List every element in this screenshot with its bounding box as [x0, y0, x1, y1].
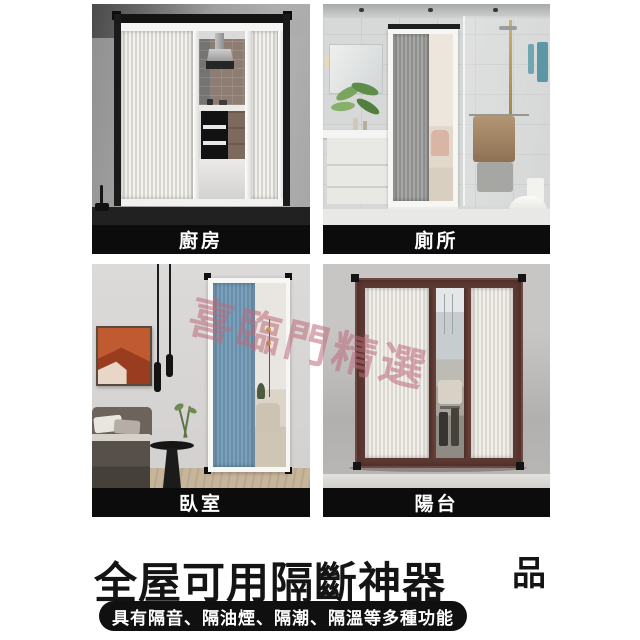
door-frame-post-right [283, 14, 290, 206]
chair-silhouette [451, 408, 459, 446]
door-bottom-rail [121, 199, 283, 206]
door-rail [278, 31, 283, 199]
pendant-light [154, 362, 161, 392]
table-plant [170, 404, 200, 444]
frame-cap [516, 462, 524, 470]
quadrant-kitchen: 廚房 [92, 4, 310, 254]
range-hood [207, 49, 233, 61]
corner-character: 品 [512, 546, 546, 595]
sofa [256, 403, 280, 431]
pendant-cord [169, 264, 171, 354]
door-frame-top [114, 14, 290, 23]
pendant-light [166, 354, 173, 377]
window-mullion [444, 294, 445, 334]
plant-silhouette [257, 383, 265, 399]
pendant-cord [157, 264, 159, 362]
kitchen-doorway-view [199, 31, 245, 199]
potted-plant [329, 82, 389, 134]
toilet-label: 廁所 [323, 225, 550, 254]
bathroom-floor [323, 209, 550, 225]
ceiling-light [428, 8, 433, 12]
wood-rail [429, 288, 436, 458]
feature-pill-text: 具有隔音、隔油煙、隔潮、隔溫等多種功能 [112, 604, 454, 629]
bed-reflection [438, 380, 462, 404]
door-frame-post-left [114, 14, 121, 206]
accordion-panel-right [471, 288, 513, 458]
oven-handle [203, 141, 226, 145]
frame-cap [518, 274, 526, 282]
ceiling-light [493, 8, 498, 12]
chair-silhouette [439, 412, 448, 446]
towel-teal [537, 42, 548, 82]
quadrant-balcony: 陽台 [323, 264, 550, 517]
plant-leaf [355, 96, 382, 117]
window-mullion [452, 294, 453, 334]
toiletry-bottle [363, 121, 367, 130]
bed-blanket [92, 434, 150, 488]
toiletry-bottle [353, 118, 358, 130]
center-glass-view [436, 288, 464, 458]
doorway-view [429, 34, 453, 201]
towel-teal [528, 44, 534, 74]
feature-pill: 具有隔音、隔油煙、隔潮、隔溫等多種功能 [99, 601, 467, 631]
towel-gray [477, 162, 513, 192]
wall-art [96, 326, 152, 386]
range-hood-chimney [215, 33, 224, 49]
built-in-oven [201, 111, 228, 159]
wood-rail [464, 288, 471, 458]
balcony-label: 陽台 [323, 488, 550, 517]
door-header-rail [121, 23, 283, 31]
kitchen-label: 廚房 [92, 225, 310, 254]
balcony-floor [323, 474, 550, 488]
bedroom-label: 臥室 [92, 488, 310, 517]
pillow [114, 419, 141, 435]
kitchen-cabinet [228, 111, 245, 159]
faucet-base [95, 203, 109, 211]
quadrant-toilet: 廁所 [323, 4, 550, 254]
range-hood-panel [206, 61, 234, 69]
accordion-panel-gray [393, 34, 429, 201]
accordion-panel-right [251, 31, 278, 199]
faucet-silhouette [95, 185, 109, 211]
accordion-panel-left [121, 31, 193, 199]
frame-cap [353, 462, 361, 470]
plant-leaf [350, 80, 380, 98]
product-banner: 廚房 [0, 0, 640, 640]
armchair [431, 130, 449, 156]
shower-head [499, 26, 517, 30]
ceiling-light [359, 8, 364, 12]
kitchen-floor [199, 159, 245, 199]
towel-brown [473, 116, 515, 162]
frame-cap [351, 274, 359, 282]
kitchen-photo [92, 4, 310, 225]
faucet-stem [100, 185, 103, 205]
kitchen-counter-base [92, 207, 310, 225]
plant-leaf [331, 101, 356, 112]
oven-handle [203, 125, 226, 129]
toilet-photo [323, 4, 550, 225]
